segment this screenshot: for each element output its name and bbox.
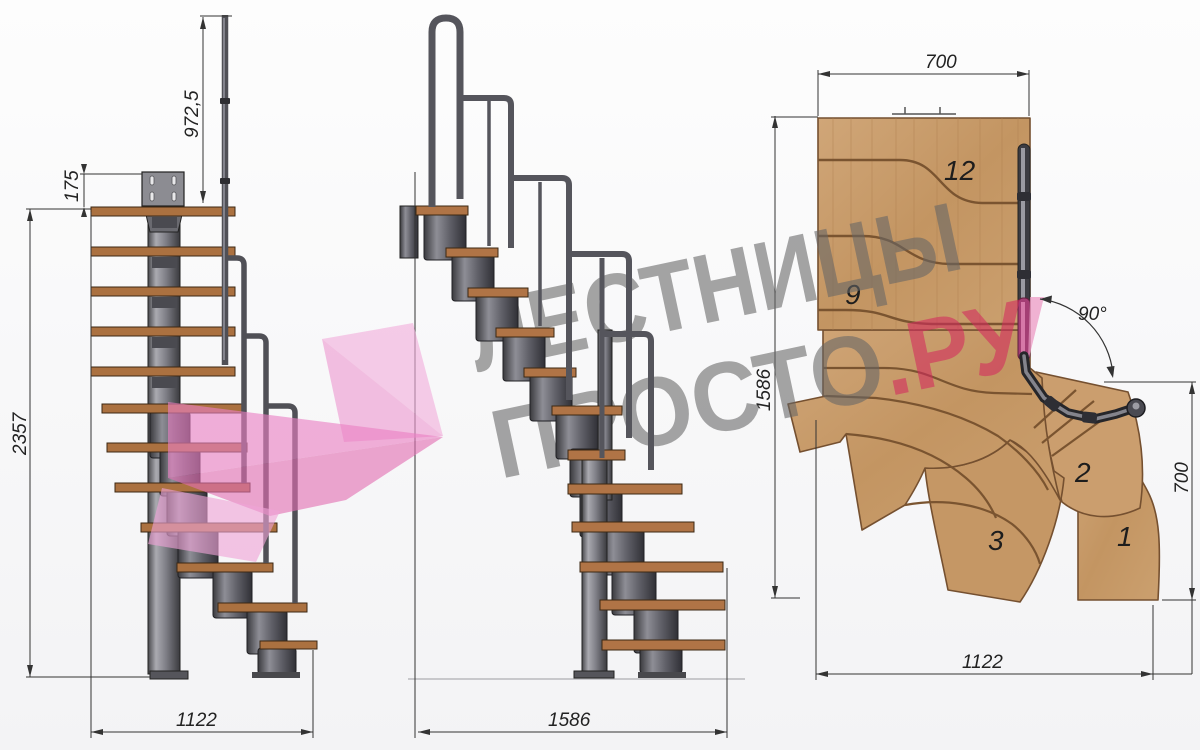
svg-text:175: 175 — [62, 170, 83, 202]
svg-text:12: 12 — [944, 155, 976, 186]
svg-text:90°: 90° — [1078, 304, 1107, 325]
svg-text:1122: 1122 — [962, 652, 1003, 673]
svg-text:1: 1 — [1117, 521, 1133, 552]
svg-text:700: 700 — [925, 52, 957, 73]
svg-text:972,5: 972,5 — [182, 90, 203, 138]
svg-text:1122: 1122 — [176, 710, 217, 731]
svg-text:2357: 2357 — [10, 411, 31, 456]
svg-text:2: 2 — [1074, 457, 1091, 488]
svg-text:3: 3 — [988, 525, 1004, 556]
svg-text:700: 700 — [1172, 462, 1193, 494]
svg-text:1586: 1586 — [548, 710, 591, 731]
